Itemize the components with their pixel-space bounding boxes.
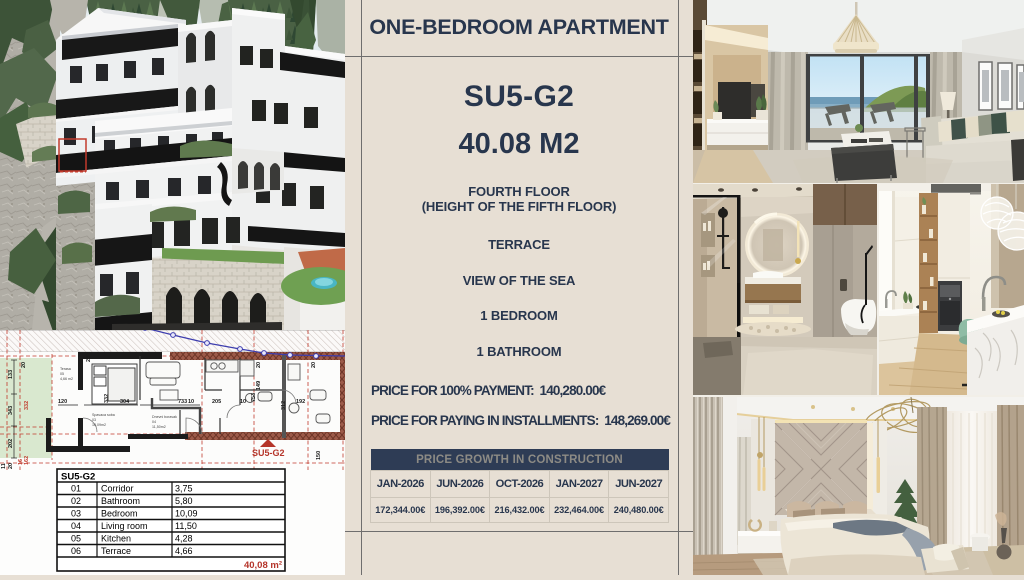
svg-text:04: 04 bbox=[71, 521, 81, 531]
svg-text:Bathroom: Bathroom bbox=[101, 496, 140, 506]
svg-text:02: 02 bbox=[71, 496, 81, 506]
svg-text:Kitchen: Kitchen bbox=[101, 534, 131, 544]
svg-text:202: 202 bbox=[8, 439, 14, 448]
svg-text:192: 192 bbox=[296, 399, 305, 405]
svg-text:4,66: 4,66 bbox=[175, 546, 193, 556]
svg-text:10: 10 bbox=[188, 399, 194, 405]
svg-text:05: 05 bbox=[60, 372, 64, 376]
svg-text:05: 05 bbox=[71, 534, 81, 544]
svg-text:20: 20 bbox=[311, 362, 317, 368]
svg-text:312: 312 bbox=[281, 401, 287, 410]
svg-text:Terrace: Terrace bbox=[101, 546, 131, 556]
svg-text:304: 304 bbox=[120, 399, 130, 405]
svg-text:Dnevni boravak: Dnevni boravak bbox=[152, 415, 177, 419]
svg-text:03: 03 bbox=[71, 509, 81, 519]
svg-text:11,50: 11,50 bbox=[175, 521, 197, 531]
svg-text:06: 06 bbox=[71, 546, 81, 556]
svg-text:205: 205 bbox=[212, 399, 221, 405]
svg-text:733: 733 bbox=[178, 399, 187, 405]
svg-text:20: 20 bbox=[86, 356, 92, 362]
svg-text:04: 04 bbox=[152, 420, 156, 424]
svg-text:20: 20 bbox=[21, 362, 27, 368]
svg-text:343: 343 bbox=[8, 406, 14, 415]
svg-text:20: 20 bbox=[256, 362, 262, 368]
svg-text:162: 162 bbox=[24, 456, 30, 465]
svg-text:3,75: 3,75 bbox=[175, 484, 193, 494]
svg-text:149: 149 bbox=[256, 381, 262, 390]
svg-text:332: 332 bbox=[104, 394, 110, 403]
svg-text:Terasa: Terasa bbox=[60, 367, 71, 371]
svg-text:332: 332 bbox=[24, 401, 30, 410]
svg-text:Bedroom: Bedroom bbox=[101, 509, 138, 519]
svg-text:5,80: 5,80 bbox=[175, 496, 193, 506]
svg-text:01: 01 bbox=[71, 484, 81, 494]
svg-text:133: 133 bbox=[8, 370, 14, 379]
svg-text:Living room: Living room bbox=[101, 521, 148, 531]
svg-text:Spavaca soba: Spavaca soba bbox=[92, 413, 115, 417]
svg-text:SU5-G2: SU5-G2 bbox=[252, 448, 285, 458]
svg-text:753: 753 bbox=[251, 393, 257, 402]
svg-text:Corridor: Corridor bbox=[101, 484, 134, 494]
svg-text:11: 11 bbox=[1, 463, 7, 469]
svg-text:SU5-G2: SU5-G2 bbox=[61, 472, 95, 483]
svg-text:4,28: 4,28 bbox=[175, 534, 193, 544]
svg-text:10,09m2: 10,09m2 bbox=[92, 423, 106, 427]
svg-text:120: 120 bbox=[58, 399, 67, 405]
svg-text:11,50m2: 11,50m2 bbox=[152, 425, 166, 429]
svg-text:10: 10 bbox=[240, 399, 246, 405]
svg-text:16: 16 bbox=[18, 459, 24, 465]
svg-text:150: 150 bbox=[316, 451, 322, 460]
svg-text:4,66 m2: 4,66 m2 bbox=[60, 377, 73, 381]
svg-text:03: 03 bbox=[92, 418, 96, 422]
svg-text:20: 20 bbox=[8, 463, 14, 469]
svg-text:40,08 m²: 40,08 m² bbox=[244, 560, 282, 571]
svg-text:10,09: 10,09 bbox=[175, 509, 198, 519]
